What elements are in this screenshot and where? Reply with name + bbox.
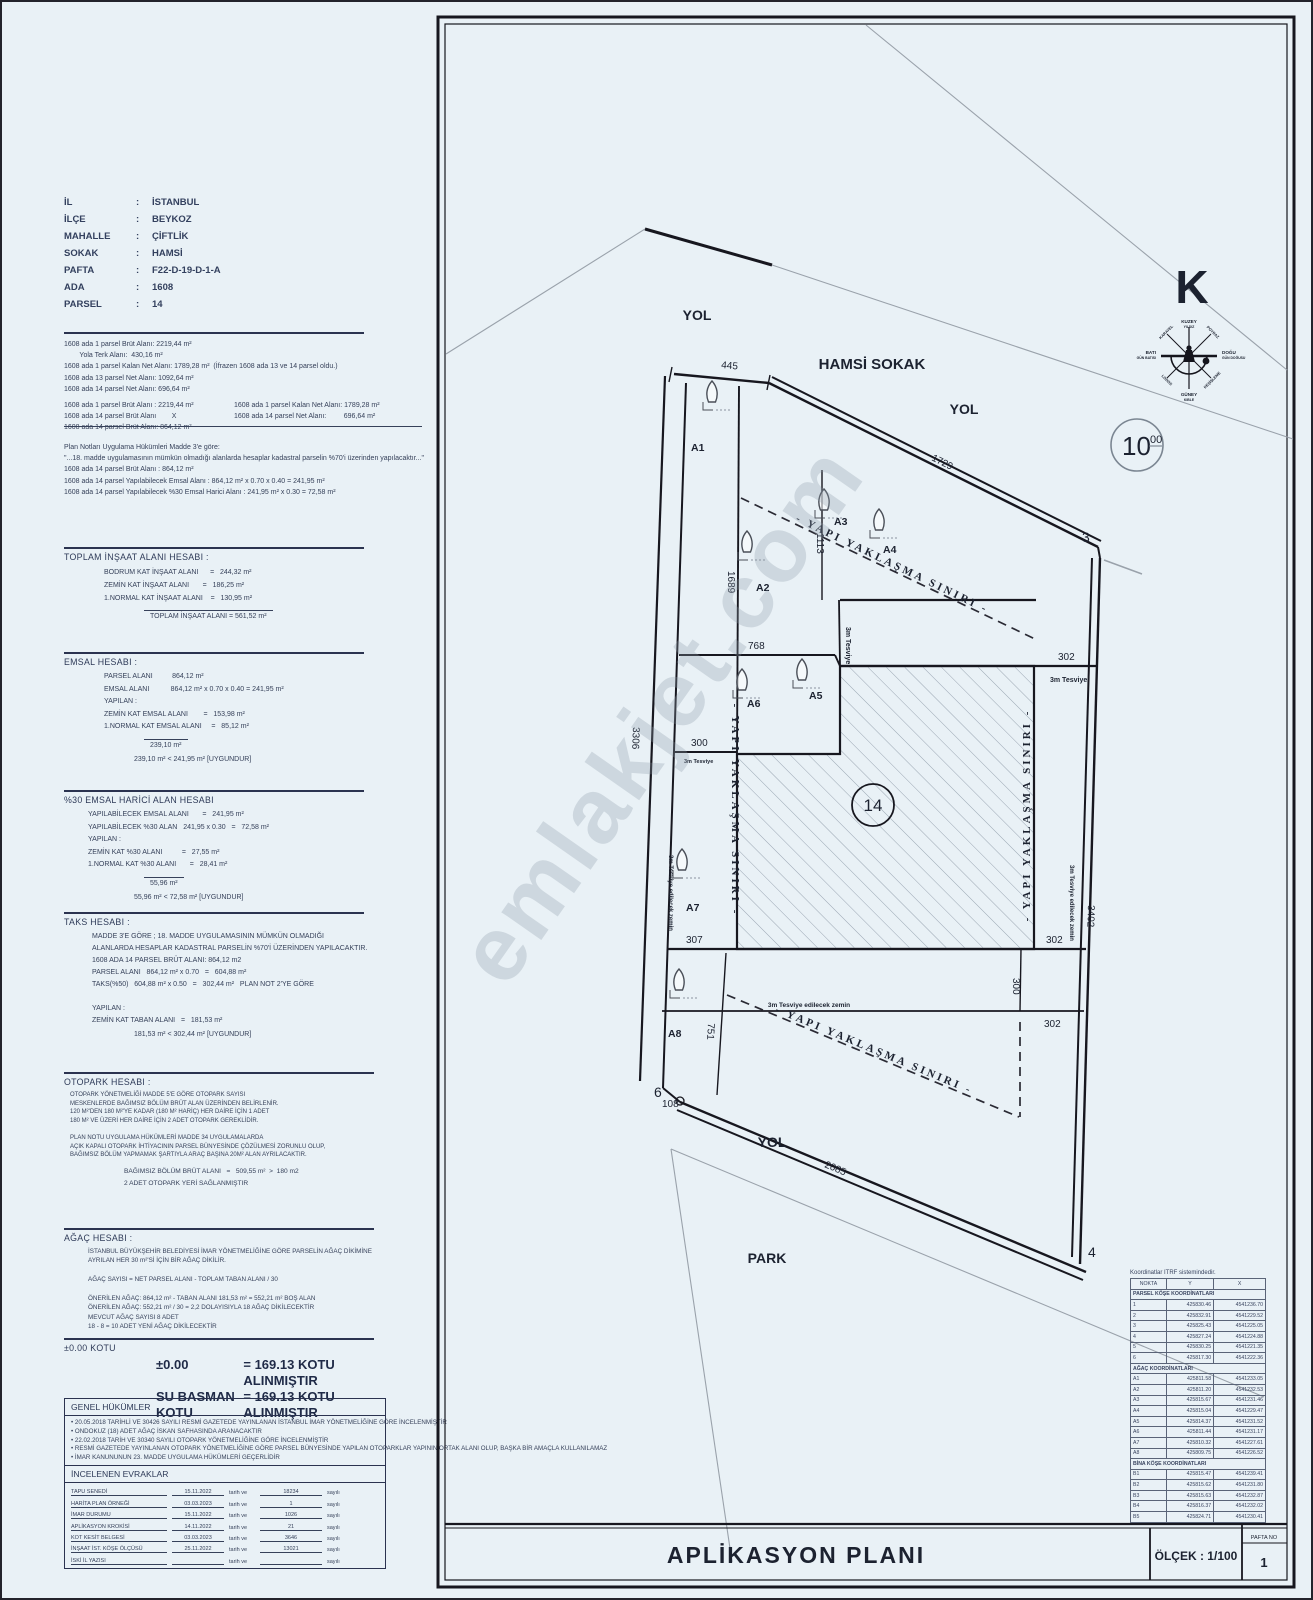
info-cell: PAFTA <box>64 262 136 279</box>
info-cell: : <box>136 228 152 245</box>
evrak-row: İSKİ İL YAZISI tarih ve sayılı <box>71 1553 379 1564</box>
coords-cell: B3 <box>1131 1490 1167 1501</box>
coords-cell: 4541233.05 <box>1214 1374 1266 1385</box>
evrak-cell <box>172 1558 224 1565</box>
area-notes-1: 1608 ada 1 parsel Brüt Alanı: 2219,44 m²… <box>64 339 429 395</box>
street-label-yol-3: YOL <box>758 1134 787 1150</box>
section-title: AĞAÇ HESABI : <box>64 1233 374 1243</box>
info-cell: PARSEL <box>64 296 136 313</box>
text-line: 1.NORMAL KAT %30 ALANI = 28,41 m² <box>88 859 364 872</box>
text-line: 22.02.2018 TARİH VE 30340 SAYILI OTOPARK… <box>71 1437 379 1446</box>
street-label-yol-2: YOL <box>950 401 979 417</box>
coords-row: B1425815.474541239.41 <box>1131 1469 1266 1480</box>
road-width-decimals: 00 <box>1150 434 1162 446</box>
section-lines: BODRUM KAT İNŞAAT ALANI = 244,32 m²ZEMİN… <box>104 566 364 605</box>
coords-header: X <box>1214 1279 1266 1290</box>
coords-cell: 425817.30 <box>1166 1353 1213 1364</box>
info-cell: F22-D-19-D-1-A <box>152 262 221 279</box>
text-line: ZEMİN KAT EMSAL ALANI = 153,98 m² <box>104 709 364 722</box>
tree-label: A6 <box>747 698 761 710</box>
point-4: 4 <box>1088 1244 1096 1260</box>
road-width-value: 10 <box>1122 431 1151 461</box>
text-line: 1.NORMAL KAT EMSAL ALANI = 85,12 m² <box>104 721 364 734</box>
evrak-row: İNŞAAT İST. KÖŞE ÖLÇÜSÜ25.11.2022tarih v… <box>71 1542 379 1553</box>
dim-445: 445 <box>721 360 739 372</box>
coords-row: B3425815.634541232.87 <box>1131 1490 1266 1501</box>
coords-cell: A2 <box>1131 1384 1167 1395</box>
text-line: MESKENLERDE BAĞIMSIZ BÖLÜM BRÜT ALAN ÜZE… <box>70 1100 374 1109</box>
coords-cell: 2 <box>1131 1310 1167 1321</box>
compass-n2: YILDIZ <box>1184 325 1195 329</box>
compass-sw: LODOS <box>1161 374 1174 387</box>
tree-icon <box>738 531 767 560</box>
scale-label: ÖLÇEK : 1/100 <box>1155 1548 1238 1563</box>
text-line: YAPILAN : <box>88 834 364 847</box>
coords-row: B2425815.624541231.80 <box>1131 1480 1266 1491</box>
info-cell: : <box>136 262 152 279</box>
tesviye-note: 3m Tesviye <box>684 759 713 765</box>
info-cell: : <box>136 211 152 228</box>
section-compare: 239,10 m² < 241,95 m² [UYGUNDUR] <box>134 756 364 763</box>
tree-label: A7 <box>686 902 700 914</box>
coords-cell: 4541231.52 <box>1214 1416 1266 1427</box>
kot-value: = 169.13 KOTU ALINMIŞTIR <box>243 1357 374 1389</box>
text-line: 2 ADET OTOPARK YERİ SAĞLANMIŞTIR <box>124 1178 374 1190</box>
section-lines: OTOPARK YÖNETMELİĞİ MADDE 5'E GÖRE OTOPA… <box>70 1091 374 1160</box>
info-cell: ÇİFTLİK <box>152 228 188 245</box>
coords-row: 3425825.434541225.05 <box>1131 1321 1266 1332</box>
tesviye-zemin-note: 3m Tesviye edilecek zemin <box>1068 865 1074 941</box>
divider <box>64 332 364 334</box>
coords-row: A8425809.754541226.52 <box>1131 1448 1266 1459</box>
coords-cell: 4541222.36 <box>1214 1353 1266 1364</box>
info-cell: İLÇE <box>64 211 136 228</box>
text-line: İMAR KANUNUNUN 23. MADDE UYGULAMA HÜKÜML… <box>71 1454 379 1463</box>
text-line: PARSEL ALANI 864,12 m² x 0.70 = 604,88 m… <box>92 967 364 979</box>
tree-icon <box>673 849 702 878</box>
tree-icon <box>815 489 844 518</box>
genel-title: GENEL HÜKÜMLER <box>65 1399 385 1416</box>
coordinates-table: Koordinatlar ITRF sistemindedir. NOKTAYX… <box>1130 1270 1266 1523</box>
evrak-cell: 03.03.2023 <box>172 1501 224 1508</box>
text-line: AYRILAN HER 30 m²'Sİ İÇİN BİR AĞAÇ DİKİL… <box>88 1256 374 1265</box>
tree-icon <box>793 659 822 688</box>
coords-cell: 425830.25 <box>1166 1342 1213 1353</box>
evrak-row: İMAR DURUMU15.11.2022tarih ve1026sayılı <box>71 1508 379 1519</box>
info-cell: MAHALLE <box>64 228 136 245</box>
coords-row: 1425830.464541236.70 <box>1131 1300 1266 1311</box>
coords-row: B5425824.714541230.41 <box>1131 1512 1266 1523</box>
tesviye-zemin-note: 3m Tesviye edilecek zemin <box>667 855 673 931</box>
coords-cell: 4541239.41 <box>1214 1469 1266 1480</box>
evrak-row: APLİKASYON KROKİSİ14.11.2022tarih ve21sa… <box>71 1519 379 1530</box>
section-total: 239,10 m² <box>144 739 188 749</box>
compass-e: DOĞU <box>1222 348 1236 355</box>
coords-cell: 4541231.17 <box>1214 1427 1266 1438</box>
text-line: 1608 ada 1 parsel Brüt Alanı : 2219,44 m… <box>64 400 254 411</box>
coords-cell: 425811.58 <box>1166 1374 1213 1385</box>
tree-label: A8 <box>668 1028 682 1040</box>
genel-hukumler-box: GENEL HÜKÜMLER 20.05.2018 TARİHLİ VE 304… <box>64 1398 386 1569</box>
info-cell: 14 <box>152 296 163 313</box>
coords-cell: 4541224.88 <box>1214 1331 1266 1342</box>
text-line: YAPILABİLECEK EMSAL ALANI = 241,95 m² <box>88 809 364 822</box>
sheet-title: APLİKASYON PLANI <box>667 1542 925 1568</box>
building-footprint-hatch <box>737 666 1034 949</box>
text-line: 20.05.2018 TARİHLİ VE 30426 SAYILI RESMİ… <box>71 1419 379 1428</box>
text-line: Yola Terk Alanı: 430,16 m² <box>64 350 429 361</box>
coords-cell: 4541229.52 <box>1214 1310 1266 1321</box>
setback-label-right: - YAPI YAKLAŞMA SINIRI - <box>1021 709 1033 922</box>
text-line: PLAN NOTU UYGULAMA HÜKÜMLERİ MADDE 34 UY… <box>70 1134 374 1143</box>
coords-cell: 425810.32 <box>1166 1437 1213 1448</box>
section-title: TOPLAM İNŞAAT ALANI HESABI : <box>64 552 364 562</box>
section-total: TOPLAM İNŞAAT ALANI = 561,52 m² <box>144 610 273 620</box>
text-line: Plan Notları Uygulama Hükümleri Madde 3'… <box>64 442 444 453</box>
coords-cell: A6 <box>1131 1427 1167 1438</box>
coords-cell: 5 <box>1131 1342 1167 1353</box>
section-taks: TAKS HESABI : MADDE 3'E GÖRE ; 18. MADDE… <box>64 912 364 1038</box>
coords-cell: A5 <box>1131 1416 1167 1427</box>
setback-label-left: - YAPI YAKLAŞMA SINIRI - <box>729 704 741 917</box>
info-row: PARSEL:14 <box>64 296 394 313</box>
evrak-cell: sayılı <box>327 1513 349 1519</box>
dim-3402: 3402 <box>1084 905 1096 928</box>
coords-row: A1425811.584541233.05 <box>1131 1374 1266 1385</box>
underline <box>64 426 422 427</box>
coords-cell: 425827.24 <box>1166 1331 1213 1342</box>
info-row: ADA:1608 <box>64 279 394 296</box>
street-label-yol-1: YOL <box>683 307 712 323</box>
evrak-cell: tarih ve <box>229 1490 255 1496</box>
evrak-cell: 1026 <box>260 1512 322 1519</box>
road-width-badge: 10 00 <box>1111 419 1163 471</box>
section-total: 55,96 m² <box>144 877 184 887</box>
evrak-cell: tarih ve <box>229 1502 255 1508</box>
coords-row: 4425827.244541224.88 <box>1131 1331 1266 1342</box>
evrak-cell: İMAR DURUMU <box>71 1512 167 1519</box>
dim-768: 768 <box>748 641 765 652</box>
text-line: ONDOKUZ (18) ADET AĞAÇ İSKAN SAFHASINDA … <box>71 1428 379 1437</box>
coords-cell: A7 <box>1131 1437 1167 1448</box>
coords-cell: B1 <box>1131 1469 1167 1480</box>
info-cell: : <box>136 279 152 296</box>
text-line: AĞAÇ SAYISI = NET PARSEL ALANI - TOPLAM … <box>88 1275 374 1284</box>
coords-title: Koordinatlar ITRF sistemindedir. <box>1130 1270 1266 1276</box>
text-line: AÇIK KAPALI OTOPARK İHTİYACININ PARSEL B… <box>70 1143 374 1152</box>
coords-cell: 425824.71 <box>1166 1512 1213 1523</box>
coords-cell: 4541230.41 <box>1214 1512 1266 1523</box>
text-line: TAKS(%50) 604,88 m² x 0.50 = 302,44 m² P… <box>92 979 364 991</box>
text-line: 1608 ada 14 parsel Brüt Alanı : 864,12 m… <box>64 464 444 475</box>
info-cell: SOKAK <box>64 245 136 262</box>
coords-cell: 425816.37 <box>1166 1501 1213 1512</box>
section-title: EMSAL HESABI : <box>64 657 364 667</box>
coords-cell: 425825.43 <box>1166 1321 1213 1332</box>
section-lines: PARSEL ALANI 864,12 m²EMSAL ALANI 864,12… <box>104 671 364 734</box>
section-compare: 181,53 m² < 302,44 m² [UYGUNDUR] <box>134 1031 364 1038</box>
coords-cell: 4541227.61 <box>1214 1437 1266 1448</box>
dim-751: 751 <box>704 1023 716 1041</box>
info-cell: : <box>136 296 152 313</box>
text-line: EMSAL ALANI 864,12 m² x 0.70 x 0.40 = 24… <box>104 684 364 697</box>
text-line: ZEMİN KAT İNŞAAT ALANI = 186,25 m² <box>104 579 364 592</box>
point-108: 108 <box>662 1099 679 1110</box>
evrak-cell: 25.11.2022 <box>172 1546 224 1553</box>
evrak-cell: tarih ve <box>229 1547 255 1553</box>
text-line: MEVCUT AĞAÇ SAYISI 8 ADET <box>88 1313 374 1322</box>
evrak-cell: sayılı <box>327 1490 349 1496</box>
evrak-cell: 1 <box>260 1501 322 1508</box>
dim-302-mid: 302 <box>1046 935 1063 946</box>
evrak-row: KOT KESİT BELGESİ03.03.2023tarih ve3646s… <box>71 1531 379 1542</box>
evrak-cell: sayılı <box>327 1536 349 1542</box>
coords-row: 6425817.304541222.36 <box>1131 1353 1266 1364</box>
info-row: MAHALLE:ÇİFTLİK <box>64 228 394 245</box>
tesviye-note: 3m Tesviye <box>1050 677 1087 684</box>
dim-302-top: 302 <box>1058 652 1075 663</box>
evrak-cell: KOT KESİT BELGESİ <box>71 1535 167 1542</box>
text-line: 1608 ada 1 parsel Brüt Alanı: 2219,44 m² <box>64 339 429 350</box>
coords-cell: 4541232.02 <box>1214 1501 1266 1512</box>
text-line: PARSEL ALANI 864,12 m² <box>104 671 364 684</box>
info-cell: : <box>136 245 152 262</box>
coords-cell: 425815.67 <box>1166 1395 1213 1406</box>
text-line: 180 M² VE ÜZERİ HER DAİRE İÇİN 2 ADET OT… <box>70 1117 374 1126</box>
coords-row: 2425832.914541229.52 <box>1131 1310 1266 1321</box>
coords-cell: 4541221.35 <box>1214 1342 1266 1353</box>
point-6: 6 <box>654 1084 662 1100</box>
north-letter-k: K <box>1175 261 1208 313</box>
evrak-cell: 15.11.2022 <box>172 1512 224 1519</box>
coords-cell: 1 <box>1131 1300 1167 1311</box>
text-line: BAĞIMSIZ BÖLÜM BRÜT ALANI = 509,55 m² > … <box>124 1166 374 1178</box>
coords-cell: A3 <box>1131 1395 1167 1406</box>
street-label-hamsi-sokak: HAMSİ SOKAK <box>819 356 926 373</box>
tree-label: A2 <box>756 582 770 594</box>
coords-table-grid: NOKTAYXPARSEL KÖŞE KOORDİNATLARI1425830.… <box>1130 1278 1266 1523</box>
section-lines: İSTANBUL BÜYÜKŞEHİR BELEDİYESİ İMAR YÖNE… <box>88 1247 374 1332</box>
text-line <box>88 1285 374 1294</box>
compass-s: GÜNEY <box>1181 391 1197 397</box>
text-line: MADDE 3'E GÖRE ; 18. MADDE UYGULAMASININ… <box>92 931 364 943</box>
info-cell: 1608 <box>152 279 173 296</box>
compass-rose: K KUZEY YILDIZ BATI GÜN BATISI DOĞU GÜN … <box>1137 261 1246 402</box>
tree-icon <box>870 509 899 538</box>
coords-cell: 4541231.46 <box>1214 1395 1266 1406</box>
section-title: %30 EMSAL HARİCİ ALAN HESABI <box>64 795 364 805</box>
dim-3306: 3306 <box>629 727 641 750</box>
text-line: 1608 ada 14 parsel Yapılabilecek Emsal A… <box>64 476 444 487</box>
text-line: ÖNERİLEN AĞAÇ: 864,12 m² - TABAN ALANI 1… <box>88 1294 374 1303</box>
dim-307: 307 <box>686 935 703 946</box>
tree-label: A3 <box>834 516 848 528</box>
text-line: ÖNERİLEN AĞAÇ: 552,21 m² / 30 = 2,2 DOLA… <box>88 1303 374 1312</box>
text-line: 1608 ada 14 parsel Net Alanı: 696,64 m² <box>64 384 429 395</box>
info-cell: İSTANBUL <box>152 194 199 211</box>
compass-s2: KIBLE <box>1184 398 1195 402</box>
setback-label-lower: - YAPI YAKLAŞMA SINIRI - <box>774 1004 975 1097</box>
text-line: 18 - 8 = 10 ADET YENİ AĞAÇ DİKİLECEKTİR <box>88 1322 374 1331</box>
coords-cell: 4541231.80 <box>1214 1480 1266 1491</box>
coords-cell: B2 <box>1131 1480 1167 1491</box>
coords-cell: 3 <box>1131 1321 1167 1332</box>
coords-cell: 4 <box>1131 1331 1167 1342</box>
coords-cell: 4541236.70 <box>1214 1300 1266 1311</box>
coords-cell: 4541226.52 <box>1214 1448 1266 1459</box>
evrak-cell: TAPU SENEDİ <box>71 1489 167 1496</box>
coords-section-header: BİNA KÖŞE KOORDİNATLARI <box>1131 1459 1266 1470</box>
text-line: 1608 ada 14 parsel Net Alanı: 696,64 m² <box>234 411 434 422</box>
dim-300-right: 300 <box>1010 978 1021 995</box>
text-line: YAPILAN : <box>92 1003 364 1015</box>
coords-row: A4425815.044541229.47 <box>1131 1406 1266 1417</box>
evrak-cell: sayılı <box>327 1525 349 1531</box>
plan-note-block: Plan Notları Uygulama Hükümleri Madde 3'… <box>64 442 444 498</box>
text-line: 1608 ADA 14 PARSEL BRÜT ALANI: 864,12 m2 <box>92 955 364 967</box>
dim-302-low: 302 <box>1044 1019 1061 1030</box>
compass-w: BATI <box>1146 350 1156 355</box>
evrak-cell: HARİTA PLAN ÖRNEĞİ <box>71 1501 167 1508</box>
section-agac: AĞAÇ HESABI : İSTANBUL BÜYÜKŞEHİR BELEDİ… <box>64 1228 374 1332</box>
section-compare: 55,96 m² < 72,58 m² [UYGUNDUR] <box>134 894 364 901</box>
coords-cell: A8 <box>1131 1448 1167 1459</box>
section-emsal: EMSAL HESABI : PARSEL ALANI 864,12 m²EMS… <box>64 652 364 763</box>
info-cell: İL <box>64 194 136 211</box>
coords-cell: 425815.47 <box>1166 1469 1213 1480</box>
text-line <box>70 1125 374 1134</box>
section-title: TAKS HESABI : <box>64 917 364 927</box>
evrak-cell: 18234 <box>260 1489 322 1496</box>
coords-grid: NOKTAYXPARSEL KÖŞE KOORDİNATLARI1425830.… <box>1130 1278 1266 1523</box>
section-title: ±0.00 KOTU <box>64 1343 374 1353</box>
text-line: YAPILAN : <box>104 696 364 709</box>
area-label-park: PARK <box>748 1250 787 1266</box>
evrak-cell: 13021 <box>260 1546 322 1553</box>
coords-cell: 425811.20 <box>1166 1384 1213 1395</box>
tree-label: A4 <box>883 544 897 556</box>
text-line: 1608 ada 13 parsel Net Alanı: 1092,64 m² <box>64 373 429 384</box>
evrak-row: HARİTA PLAN ÖRNEĞİ03.03.2023tarih ve1say… <box>71 1496 379 1507</box>
info-cell: ADA <box>64 279 136 296</box>
coords-row: A5425814.374541231.52 <box>1131 1416 1266 1427</box>
coords-cell: 425830.46 <box>1166 1300 1213 1311</box>
tree-label: A5 <box>809 690 823 702</box>
section-emsal-harici: %30 EMSAL HARİCİ ALAN HESABI YAPILABİLEC… <box>64 790 364 901</box>
text-line: ZEMİN KAT TABAN ALANI = 181,53 m² <box>92 1015 364 1027</box>
text-line: 1608 ada 14 parsel Brüt Alanı X <box>64 411 254 422</box>
coords-cell: 4541225.05 <box>1214 1321 1266 1332</box>
section-lines: YAPILABİLECEK EMSAL ALANI = 241,95 m²YAP… <box>88 809 364 872</box>
coords-cell: 425814.37 <box>1166 1416 1213 1427</box>
title-block: APLİKASYON PLANI ÖLÇEK : 1/100 PAFTA NO … <box>445 1524 1287 1580</box>
tesviye-zemin-note: 3m Tesviye edilecek zemin <box>768 1002 850 1009</box>
parcel-info-block: İL:İSTANBULİLÇE:BEYKOZMAHALLE:ÇİFTLİKSOK… <box>64 194 394 313</box>
tree-label: A1 <box>691 442 705 454</box>
info-row: PAFTA:F22-D-19-D-1-A <box>64 262 394 279</box>
area-notes-2-left: 1608 ada 1 parsel Brüt Alanı : 2219,44 m… <box>64 400 254 434</box>
text-line: "...18. madde uygulamasının mümkün olmad… <box>64 453 444 464</box>
evrak-cell: İNŞAAT İST. KÖŞE ÖLÇÜSÜ <box>71 1546 167 1553</box>
coords-cell: 4541232.87 <box>1214 1490 1266 1501</box>
evrak-cell: sayılı <box>327 1502 349 1508</box>
point-3: 3 <box>1082 529 1090 545</box>
text-line: OTOPARK YÖNETMELİĞİ MADDE 5'E GÖRE OTOPA… <box>70 1091 374 1100</box>
coords-cell: 6 <box>1131 1353 1167 1364</box>
coords-cell: 425815.63 <box>1166 1490 1213 1501</box>
coords-row: A2425811.204541232.53 <box>1131 1384 1266 1395</box>
compass-e2: GÜN DOĞUSU <box>1222 355 1246 360</box>
coords-section-header: AĞAÇ KOORDİNATLARI <box>1131 1363 1266 1374</box>
coords-cell: B5 <box>1131 1512 1167 1523</box>
road-edge-thick <box>645 229 772 265</box>
text-line: 1608 ada 14 parsel Brüt Alanı: 864,12 m² <box>64 422 254 433</box>
evrak-cell: 3646 <box>260 1535 322 1542</box>
coords-row: A3425815.674541231.46 <box>1131 1395 1266 1406</box>
coords-cell: 425811.44 <box>1166 1427 1213 1438</box>
evrak-row: TAPU SENEDİ15.11.2022tarih ve18234sayılı <box>71 1485 379 1496</box>
section-title: OTOPARK HESABI : <box>64 1077 374 1087</box>
kot-label: ±0.00 <box>64 1357 243 1389</box>
pafta-label: PAFTA NO <box>1251 1535 1278 1541</box>
coords-cell: 425809.75 <box>1166 1448 1213 1459</box>
text-line: ALANLARDA HESAPLAR KADASTRAL PARSELİN %7… <box>92 943 364 955</box>
text-line <box>88 1266 374 1275</box>
coords-section-header: PARSEL KÖŞE KOORDİNATLARI <box>1131 1289 1266 1300</box>
evraklar-table: TAPU SENEDİ15.11.2022tarih ve18234sayılı… <box>65 1483 385 1568</box>
coords-cell: 4541229.47 <box>1214 1406 1266 1417</box>
parcel-number: 14 <box>864 796 883 815</box>
text-line: BODRUM KAT İNŞAAT ALANI = 244,32 m² <box>104 566 364 579</box>
evrak-cell: 14.11.2022 <box>172 1524 224 1531</box>
coords-cell: 425815.04 <box>1166 1406 1213 1417</box>
evrak-cell: sayılı <box>327 1559 349 1565</box>
text-line <box>92 991 364 1003</box>
text-line: 1608 ada 1 parsel Kalan Net Alanı: 1789,… <box>64 361 429 372</box>
coords-row: A7425810.324541227.61 <box>1131 1437 1266 1448</box>
evraklar-title: İNCELENEN EVRAKLAR <box>65 1465 385 1483</box>
info-row: İLÇE:BEYKOZ <box>64 211 394 228</box>
coords-header: Y <box>1166 1279 1213 1290</box>
evrak-cell: sayılı <box>327 1547 349 1553</box>
genel-bullets: 20.05.2018 TARİHLİ VE 30426 SAYILI RESMİ… <box>65 1416 385 1465</box>
text-line: ZEMİN KAT %30 ALANI = 27,55 m² <box>88 847 364 860</box>
dim-300-terrace: 300 <box>691 738 708 749</box>
coords-row: 5425830.254541221.35 <box>1131 1342 1266 1353</box>
text-line: YAPILABİLECEK %30 ALAN 241,95 x 0.30 = 7… <box>88 822 364 835</box>
coords-cell: B4 <box>1131 1501 1167 1512</box>
evrak-cell: İSKİ İL YAZISI <box>71 1558 167 1565</box>
evrak-cell: 21 <box>260 1524 322 1531</box>
tree-icon <box>670 969 699 998</box>
text-line: 1.NORMAL KAT İNŞAAT ALANI = 130,95 m² <box>104 592 364 605</box>
coords-cell: A4 <box>1131 1406 1167 1417</box>
coords-row: A6425811.444541231.17 <box>1131 1427 1266 1438</box>
section-results: BAĞIMSIZ BÖLÜM BRÜT ALANI = 509,55 m² > … <box>124 1166 374 1190</box>
text-line: İSTANBUL BÜYÜKŞEHİR BELEDİYESİ İMAR YÖNE… <box>88 1247 374 1256</box>
coords-cell: 4541232.53 <box>1214 1384 1266 1395</box>
evrak-cell: tarih ve <box>229 1536 255 1542</box>
evrak-cell: tarih ve <box>229 1525 255 1531</box>
text-line: RESMİ GAZETEDE YAYINLANAN OTOPARK YÖNETM… <box>71 1445 379 1454</box>
area-notes-2-right: 1608 ada 1 parsel Kalan Net Alanı: 1789,… <box>234 400 434 422</box>
section-otopark: OTOPARK HESABI : OTOPARK YÖNETMELİĞİ MAD… <box>64 1072 374 1190</box>
coords-row: B4425816.374541232.02 <box>1131 1501 1266 1512</box>
evrak-cell: 03.03.2023 <box>172 1535 224 1542</box>
info-cell: HAMSİ <box>152 245 183 262</box>
evrak-cell: tarih ve <box>229 1513 255 1519</box>
compass-w2: GÜN BATISI <box>1137 355 1156 360</box>
